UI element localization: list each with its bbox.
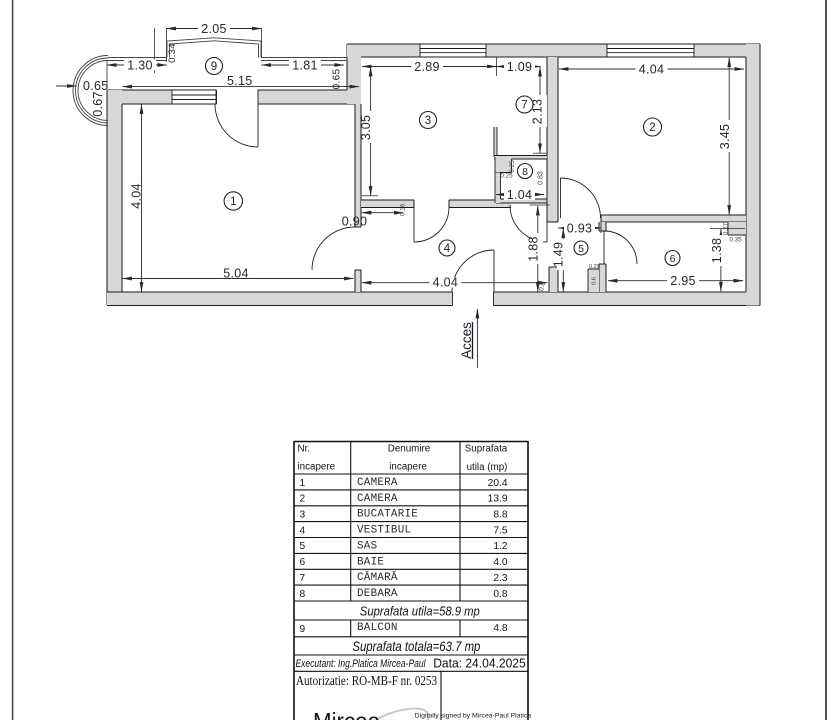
svg-text:5: 5 xyxy=(300,541,306,552)
svg-text:2.95: 2.95 xyxy=(670,274,696,288)
svg-text:0.29: 0.29 xyxy=(589,264,600,270)
svg-text:1.30: 1.30 xyxy=(127,59,153,73)
svg-text:Suprafata utila=58.9 mp: Suprafata utila=58.9 mp xyxy=(360,603,480,618)
svg-text:Nr.: Nr. xyxy=(298,444,311,455)
svg-text:CAMERA: CAMERA xyxy=(357,477,398,489)
svg-text:2.3: 2.3 xyxy=(493,573,507,584)
svg-text:BUCATARIE: BUCATARIE xyxy=(357,509,418,521)
svg-text:13.9: 13.9 xyxy=(488,494,508,505)
svg-text:20.4: 20.4 xyxy=(488,478,508,489)
svg-text:Suprafata: Suprafata xyxy=(465,444,508,455)
svg-text:Denumire: Denumire xyxy=(388,444,431,455)
svg-text:DEBARA: DEBARA xyxy=(357,588,398,600)
svg-text:2: 2 xyxy=(300,494,306,505)
svg-text:6: 6 xyxy=(300,557,306,568)
svg-text:3.05: 3.05 xyxy=(359,115,373,141)
svg-text:Data: 24.04.2025: Data: 24.04.2025 xyxy=(433,655,526,670)
svg-text:BAIE: BAIE xyxy=(357,556,384,568)
svg-text:Executant: Ing.Platica Mircea-: Executant: Ing.Platica Mircea-Paul xyxy=(296,658,426,670)
svg-text:0.25: 0.25 xyxy=(500,173,513,180)
svg-text:Digitally signed by Mircea-Pau: Digitally signed by Mircea-Paul Platica xyxy=(415,712,532,719)
svg-text:4: 4 xyxy=(444,243,451,255)
svg-text:7: 7 xyxy=(300,573,306,584)
svg-text:SAS: SAS xyxy=(357,540,377,552)
svg-text:0.27: 0.27 xyxy=(723,222,730,235)
svg-text:4.04: 4.04 xyxy=(433,275,459,289)
svg-text:0.16: 0.16 xyxy=(400,203,407,216)
svg-text:8: 8 xyxy=(522,166,528,178)
svg-text:4.8: 4.8 xyxy=(493,623,507,634)
svg-text:0.83: 0.83 xyxy=(538,171,545,185)
svg-text:2.89: 2.89 xyxy=(414,60,440,74)
svg-text:5: 5 xyxy=(578,243,584,255)
svg-text:0.35: 0.35 xyxy=(729,237,742,244)
svg-text:1.38: 1.38 xyxy=(710,238,724,264)
svg-text:7: 7 xyxy=(521,100,527,112)
svg-text:7.5: 7.5 xyxy=(493,525,507,536)
svg-text:6: 6 xyxy=(670,253,676,265)
svg-text:4.04: 4.04 xyxy=(130,183,144,209)
svg-text:0.90: 0.90 xyxy=(342,215,368,229)
svg-text:2: 2 xyxy=(649,122,655,134)
svg-text:4: 4 xyxy=(300,525,306,536)
svg-text:CAMERA: CAMERA xyxy=(357,493,398,505)
svg-text:5.15: 5.15 xyxy=(227,74,253,88)
svg-text:0.65: 0.65 xyxy=(83,79,109,93)
svg-text:VESTIBUL: VESTIBUL xyxy=(357,525,411,537)
svg-text:3: 3 xyxy=(425,115,431,127)
svg-text:0.6: 0.6 xyxy=(592,277,598,285)
svg-text:8.8: 8.8 xyxy=(493,510,507,521)
svg-text:2.05: 2.05 xyxy=(201,22,227,36)
svg-text:Acces: Acces xyxy=(459,322,474,359)
svg-text:1.88: 1.88 xyxy=(527,236,541,262)
svg-text:0.93: 0.93 xyxy=(567,221,593,235)
svg-text:9: 9 xyxy=(211,61,217,73)
svg-text:Mircea: Mircea xyxy=(313,708,381,720)
svg-text:8: 8 xyxy=(300,589,306,600)
svg-text:1: 1 xyxy=(230,196,236,208)
svg-text:9: 9 xyxy=(300,624,306,635)
svg-text:incapere: incapere xyxy=(389,462,427,473)
svg-text:utila (mp): utila (mp) xyxy=(467,462,508,473)
svg-text:1.2: 1.2 xyxy=(493,541,507,552)
svg-text:1.04: 1.04 xyxy=(507,188,533,202)
svg-text:4.04: 4.04 xyxy=(639,62,665,76)
svg-text:0.67: 0.67 xyxy=(91,91,105,117)
svg-text:BALCON: BALCON xyxy=(357,622,398,634)
svg-text:1.49: 1.49 xyxy=(552,242,566,268)
svg-text:3.45: 3.45 xyxy=(718,124,732,150)
svg-text:1.09: 1.09 xyxy=(507,60,533,74)
svg-text:Suprafata totala=63.7 mp: Suprafata totala=63.7 mp xyxy=(352,639,480,654)
svg-text:4.0: 4.0 xyxy=(493,557,507,568)
svg-text:0.34: 0.34 xyxy=(167,43,178,63)
svg-text:5.04: 5.04 xyxy=(223,267,249,281)
svg-text:incapere: incapere xyxy=(298,462,336,473)
svg-text:CĂMARĂ: CĂMARĂ xyxy=(357,570,398,584)
svg-text:Autorizatie: RO-MB-F nr. 0253: Autorizatie: RO-MB-F nr. 0253 xyxy=(296,673,437,688)
svg-text:1.81: 1.81 xyxy=(292,59,318,73)
svg-text:0.8: 0.8 xyxy=(493,589,507,600)
svg-text:0.25: 0.25 xyxy=(509,160,516,173)
svg-text:1: 1 xyxy=(300,478,306,489)
svg-text:3: 3 xyxy=(300,510,306,521)
